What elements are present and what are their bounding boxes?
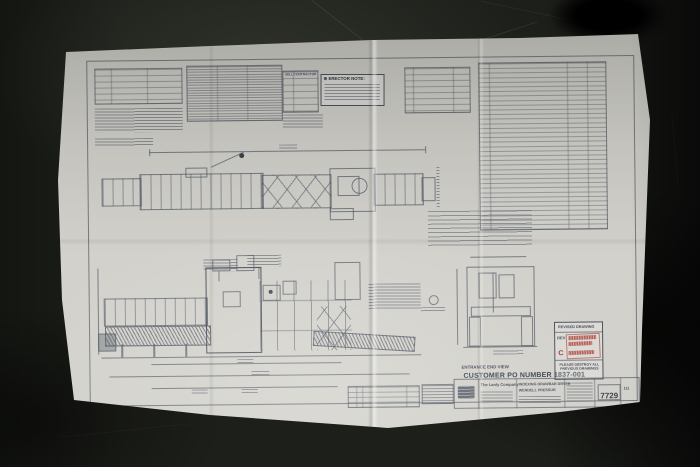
product-flow-label <box>421 307 445 312</box>
elevation-note-block <box>369 283 421 310</box>
dimension-label <box>192 389 208 393</box>
lanly-logo <box>458 386 475 399</box>
plan-view-feed-conveyor <box>101 178 141 206</box>
plan-view-detail-box <box>185 167 207 177</box>
erector-note-symbol: ⊕ <box>324 76 328 81</box>
revised-drawing-title: REVISED DRAWING <box>558 325 579 330</box>
title-block-fields <box>519 396 561 404</box>
elevation-roof-stack <box>212 259 230 271</box>
company-name: The Lanly Company <box>481 382 519 387</box>
revised-drawing-stamp: REVISED DRAWING REV C PLEASE DESTROY ALL… <box>554 321 604 380</box>
erector-note-box: ⊕ ERECTOR NOTE: <box>321 74 385 106</box>
stamp-divider <box>555 359 602 360</box>
plan-view-exit-section <box>373 173 423 206</box>
revision-table <box>348 385 420 408</box>
general-notes-text <box>95 138 153 147</box>
elevation-dryer-enclosure <box>205 267 262 354</box>
company-address <box>481 391 513 403</box>
dimension-label <box>279 145 297 149</box>
support-leg <box>153 344 155 357</box>
drawing-number-cell: 7729 <box>598 384 621 400</box>
drawing-note-box <box>422 384 454 404</box>
plan-view-end-unit <box>421 177 435 201</box>
elevation-roof-stack <box>236 255 254 271</box>
drawing-number: 7729 <box>600 391 618 400</box>
erector-note-body <box>325 84 380 102</box>
rev-label: REV <box>557 336 565 341</box>
plan-view-section <box>139 173 263 210</box>
balloon-callout <box>239 153 244 158</box>
mill-contractor-table: MILL CONTRACTOR <box>282 70 318 112</box>
panel-dot <box>269 290 273 294</box>
general-notes-text <box>95 108 183 133</box>
red-stamp-outline <box>566 333 601 360</box>
dimension-label <box>242 389 258 393</box>
drawing-sheet: MILL CONTRACTOR ⊕ ERECTOR NOTE: <box>0 0 700 467</box>
product-flow-symbol <box>429 295 439 305</box>
elevation-conveyor-frame <box>104 297 208 326</box>
dimension-tick <box>149 149 150 156</box>
photo-of-engineering-drawing: MILL CONTRACTOR ⊕ ERECTOR NOTE: <box>0 0 700 467</box>
plan-view-lower-box <box>330 208 354 220</box>
dimension-label <box>251 371 269 375</box>
mill-contractor-title: MILL CONTRACTOR <box>285 73 298 77</box>
parts-list-main <box>478 61 608 230</box>
erector-note-title: ⊕ ERECTOR NOTE: <box>324 76 357 81</box>
end-view-detail <box>478 272 496 298</box>
installation-notes-list <box>428 210 532 247</box>
end-view-band <box>471 306 531 317</box>
entrance-end-view-label: ENTRANCE END VIEW <box>461 364 508 370</box>
elevation-drive-unit <box>98 333 116 351</box>
plan-view-truss-section <box>261 174 331 209</box>
plan-view-circle-detail <box>351 178 367 194</box>
drawing-content: MILL CONTRACTOR ⊕ ERECTOR NOTE: <box>0 0 700 467</box>
drawing-title-line1: INDEXING DRAWBAR DRYER <box>519 382 571 387</box>
elevation-panel-box <box>283 281 297 295</box>
end-view-detail <box>498 274 514 298</box>
support-leg <box>121 344 123 357</box>
destroy-warning: PLEASE DESTROY ALL PREVIOUS DRAWINGS <box>558 362 600 371</box>
title-block: The Lanly Company INDEXING DRAWBAR DRYER… <box>454 377 640 409</box>
erector-note-title-text: ERECTOR NOTE: <box>328 76 364 81</box>
parts-list-upper <box>404 67 470 114</box>
scale-date-fields <box>567 382 593 402</box>
revision-history-table <box>94 68 182 105</box>
dimension-label <box>237 359 253 363</box>
specification-table <box>186 65 283 122</box>
elevation-access-door <box>223 291 241 307</box>
mill-contractor-note <box>283 114 323 128</box>
end-view-leg <box>469 317 481 347</box>
sheet-number: 1/1 <box>624 386 630 391</box>
dimension-label <box>493 350 523 354</box>
floor-scratch <box>671 116 678 186</box>
plan-view-vertical-note <box>436 167 439 207</box>
drawing-title-line2: WENDELL PRESSUR <box>519 388 556 393</box>
elevation-discharge-conveyor <box>105 325 211 346</box>
rev-value: C <box>558 349 563 357</box>
support-leg <box>185 344 187 357</box>
dimension-tick <box>425 146 426 153</box>
elevation-tower-unit <box>334 262 360 300</box>
floor-scratch <box>60 423 189 438</box>
end-view-leg <box>521 316 533 346</box>
